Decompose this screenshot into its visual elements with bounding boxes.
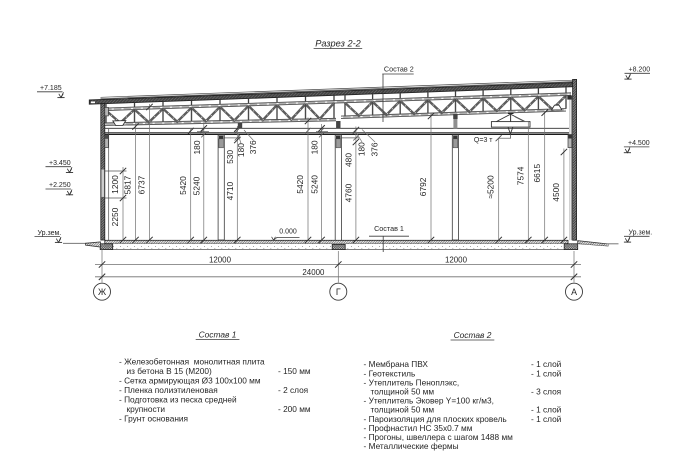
svg-text:6792: 6792 xyxy=(418,177,428,196)
svg-text:- Железобетонная монолитная п: - Железобетонная монолитная плита xyxy=(119,356,265,366)
svg-text:Ур.зем.: Ур.зем. xyxy=(38,230,62,237)
svg-text:А: А xyxy=(571,287,577,297)
svg-text:- 200 мм: - 200 мм xyxy=(278,404,311,414)
svg-text:Г: Г xyxy=(336,287,341,297)
svg-text:Разрез 2-2: Разрез 2-2 xyxy=(315,38,361,48)
svg-text:- 2 слоя: - 2 слоя xyxy=(278,385,308,395)
svg-text:376: 376 xyxy=(369,142,379,156)
svg-text:крупности: крупности xyxy=(127,404,166,414)
svg-text:+4.500: +4.500 xyxy=(628,140,650,147)
svg-text:+8.200: +8.200 xyxy=(629,67,651,74)
svg-text:530: 530 xyxy=(225,150,235,164)
svg-text:7574: 7574 xyxy=(516,166,526,185)
svg-text:Ж: Ж xyxy=(98,287,106,297)
svg-text:- 150 мм: - 150 мм xyxy=(278,366,311,376)
svg-text:Состав 1: Состав 1 xyxy=(199,330,237,340)
svg-text:+7.185: +7.185 xyxy=(40,85,62,92)
svg-text:5240: 5240 xyxy=(192,176,202,195)
svg-text:180: 180 xyxy=(310,140,320,154)
svg-text:376: 376 xyxy=(248,140,258,154)
svg-text:12000: 12000 xyxy=(445,256,468,265)
svg-text:180: 180 xyxy=(192,140,202,154)
svg-text:5420: 5420 xyxy=(295,175,305,194)
svg-text:Q=3 т: Q=3 т xyxy=(474,137,493,144)
svg-text:5420: 5420 xyxy=(178,176,188,195)
svg-text:- Пленка полиэтиленовая: - Пленка полиэтиленовая xyxy=(119,385,218,395)
svg-text:5240: 5240 xyxy=(309,175,319,194)
svg-text:1200: 1200 xyxy=(110,175,120,194)
svg-text:- Грунт основания: - Грунт основания xyxy=(119,413,188,423)
svg-text:- 1 слой: - 1 слой xyxy=(531,414,562,424)
svg-text:4500: 4500 xyxy=(551,183,561,202)
svg-text:Состав 2: Состав 2 xyxy=(454,330,492,340)
svg-text:- Подготовка из песка средней: - Подготовка из песка средней xyxy=(119,394,237,404)
svg-text:4760: 4760 xyxy=(344,183,354,202)
svg-text:180: 180 xyxy=(357,142,367,156)
svg-text:- Металлические фермы: - Металлические фермы xyxy=(364,441,459,451)
svg-text:12000: 12000 xyxy=(209,256,232,265)
svg-text:0.000: 0.000 xyxy=(279,229,297,236)
svg-text:Состав 1: Состав 1 xyxy=(374,224,404,233)
svg-text:+3.450: +3.450 xyxy=(49,160,71,167)
svg-text:Состав 2: Состав 2 xyxy=(384,65,414,74)
svg-text:24000: 24000 xyxy=(302,268,325,277)
svg-text:6615: 6615 xyxy=(532,164,542,183)
svg-text:- Сетка армирующая Ø3 100х100: - Сетка армирующая Ø3 100х100 мм xyxy=(119,375,261,385)
svg-text:480: 480 xyxy=(344,153,354,167)
svg-text:180: 180 xyxy=(236,143,246,157)
svg-text:из бетона В 15 (М200): из бетона В 15 (М200) xyxy=(127,366,212,376)
svg-text:- 1 слой: - 1 слой xyxy=(531,368,562,378)
svg-text:- 3 слоя: - 3 слоя xyxy=(531,387,561,397)
svg-text:2250: 2250 xyxy=(110,207,120,226)
svg-text:4710: 4710 xyxy=(225,181,235,200)
svg-text:6737: 6737 xyxy=(137,175,147,194)
svg-text:≈5200: ≈5200 xyxy=(486,175,496,199)
svg-text:5817: 5817 xyxy=(123,175,133,194)
svg-text:Ур.зем.: Ур.зем. xyxy=(629,230,653,237)
svg-text:+2.250: +2.250 xyxy=(49,182,71,189)
